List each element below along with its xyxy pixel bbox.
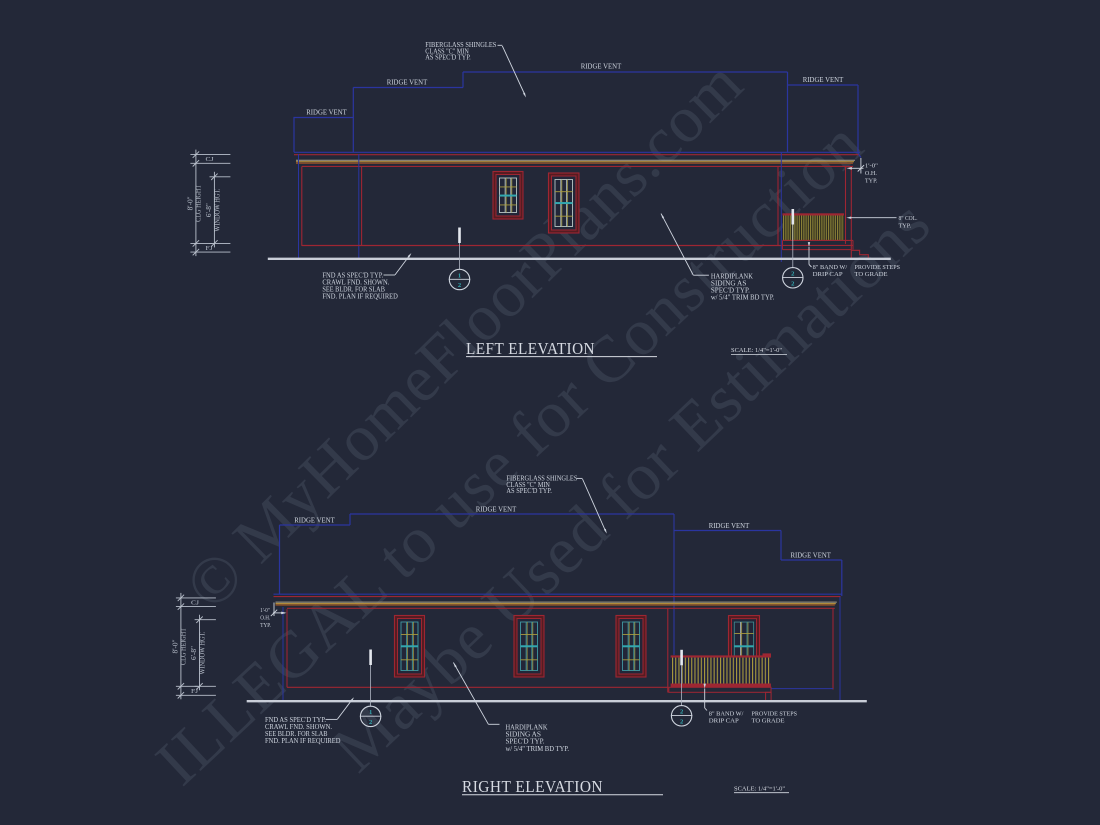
svg-text:w/ 5/4" TRIM BD TYP.: w/ 5/4" TRIM BD TYP. [506,746,570,753]
svg-text:1'-0": 1'-0" [260,607,270,614]
svg-text:RIDGE VENT: RIDGE VENT [790,552,831,560]
svg-text:DRIP CAP: DRIP CAP [813,271,843,278]
svg-text:FND. PLAN IF REQUIRED: FND. PLAN IF REQUIRED [322,294,398,301]
svg-text:TO GRADE: TO GRADE [855,271,888,278]
svg-text:O.H.: O.H. [260,614,270,621]
svg-text:FJ: FJ [206,245,214,252]
svg-text:SCALE: 1/4"=1'-0": SCALE: 1/4"=1'-0" [731,347,782,354]
svg-text:FND AS SPEC'D TYP.: FND AS SPEC'D TYP. [322,272,383,279]
svg-text:Maybe Used for Estimations: Maybe Used for Estimations [317,185,944,786]
svg-text:8" BAND W/: 8" BAND W/ [813,264,848,271]
svg-text:RIDGE VENT: RIDGE VENT [476,505,517,513]
svg-text:2: 2 [791,271,795,278]
svg-text:SCALE: 1/4"=1'-0": SCALE: 1/4"=1'-0" [734,785,785,792]
svg-text:2: 2 [680,718,684,725]
svg-text:1'-0": 1'-0" [865,163,878,170]
svg-text:WINDOW HGT.: WINDOW HGT. [200,631,207,674]
svg-text:1: 1 [458,272,461,279]
svg-text:SEE BLDR. FOR SLAB: SEE BLDR. FOR SLAB [322,287,385,294]
svg-text:AS SPEC'D TYP.: AS SPEC'D TYP. [506,488,552,495]
svg-text:SPEC'D TYP.: SPEC'D TYP. [711,288,750,295]
svg-text:TYP.: TYP. [260,622,271,629]
svg-text:RIDGE VENT: RIDGE VENT [581,63,622,71]
svg-text:2: 2 [680,709,684,716]
svg-text:TYP.: TYP. [865,178,878,185]
svg-text:O.H.: O.H. [865,170,877,177]
svg-text:FJ: FJ [191,688,199,695]
svg-text:RIGHT ELEVATION: RIGHT ELEVATION [462,777,603,796]
svg-text:SPEC'D TYP.: SPEC'D TYP. [506,739,545,746]
svg-text:SIDING AS: SIDING AS [711,281,747,288]
svg-text:1: 1 [369,709,372,716]
svg-text:LEFT ELEVATION: LEFT ELEVATION [466,339,595,358]
svg-text:6'-8": 6'-8" [206,203,213,217]
svg-text:FND AS SPEC'D TYP.: FND AS SPEC'D TYP. [265,717,326,724]
svg-text:CLG HEIGHT: CLG HEIGHT [196,184,203,222]
svg-text:WINDOW HGT.: WINDOW HGT. [214,188,221,231]
svg-text:HARDIPLANK: HARDIPLANK [506,725,548,732]
svg-text:AS SPEC'D TYP.: AS SPEC'D TYP. [425,55,471,62]
svg-text:TO GRADE: TO GRADE [752,718,785,725]
svg-text:8" BAND W/: 8" BAND W/ [709,711,744,718]
svg-text:CLG HEIGHT: CLG HEIGHT [181,627,188,665]
svg-text:RIDGE VENT: RIDGE VENT [294,516,335,524]
svg-text:FND. PLAN IF REQUIRED: FND. PLAN IF REQUIRED [265,738,341,745]
svg-text:RIDGE VENT: RIDGE VENT [387,79,428,87]
svg-text:CRAWL FND. SHOWN.: CRAWL FND. SHOWN. [322,279,389,286]
svg-text:PROVIDE STEPS: PROVIDE STEPS [752,711,798,718]
svg-text:CJ: CJ [206,156,215,163]
svg-text:8'-0": 8'-0" [172,639,179,653]
svg-text:PROVIDE STEPS: PROVIDE STEPS [855,264,901,271]
svg-text:6'-8": 6'-8" [191,646,198,660]
svg-text:SIDING AS: SIDING AS [506,732,542,739]
svg-text:w/ 5/4" TRIM BD TYP.: w/ 5/4" TRIM BD TYP. [711,295,775,302]
svg-text:CJ: CJ [191,599,200,606]
svg-text:8" COL.: 8" COL. [899,215,918,222]
svg-text:RIDGE VENT: RIDGE VENT [306,109,347,117]
svg-text:SEE BLDR. FOR SLAB: SEE BLDR. FOR SLAB [265,731,328,738]
svg-text:RIDGE VENT: RIDGE VENT [803,76,844,84]
svg-text:DRIP CAP: DRIP CAP [709,718,739,725]
svg-text:CRAWL FND. SHOWN.: CRAWL FND. SHOWN. [265,724,332,731]
svg-text:8'-0": 8'-0" [187,196,194,210]
svg-text:RIDGE VENT: RIDGE VENT [709,522,750,530]
svg-text:HARDIPLANK: HARDIPLANK [711,273,753,280]
svg-text:TYP.: TYP. [899,223,912,230]
